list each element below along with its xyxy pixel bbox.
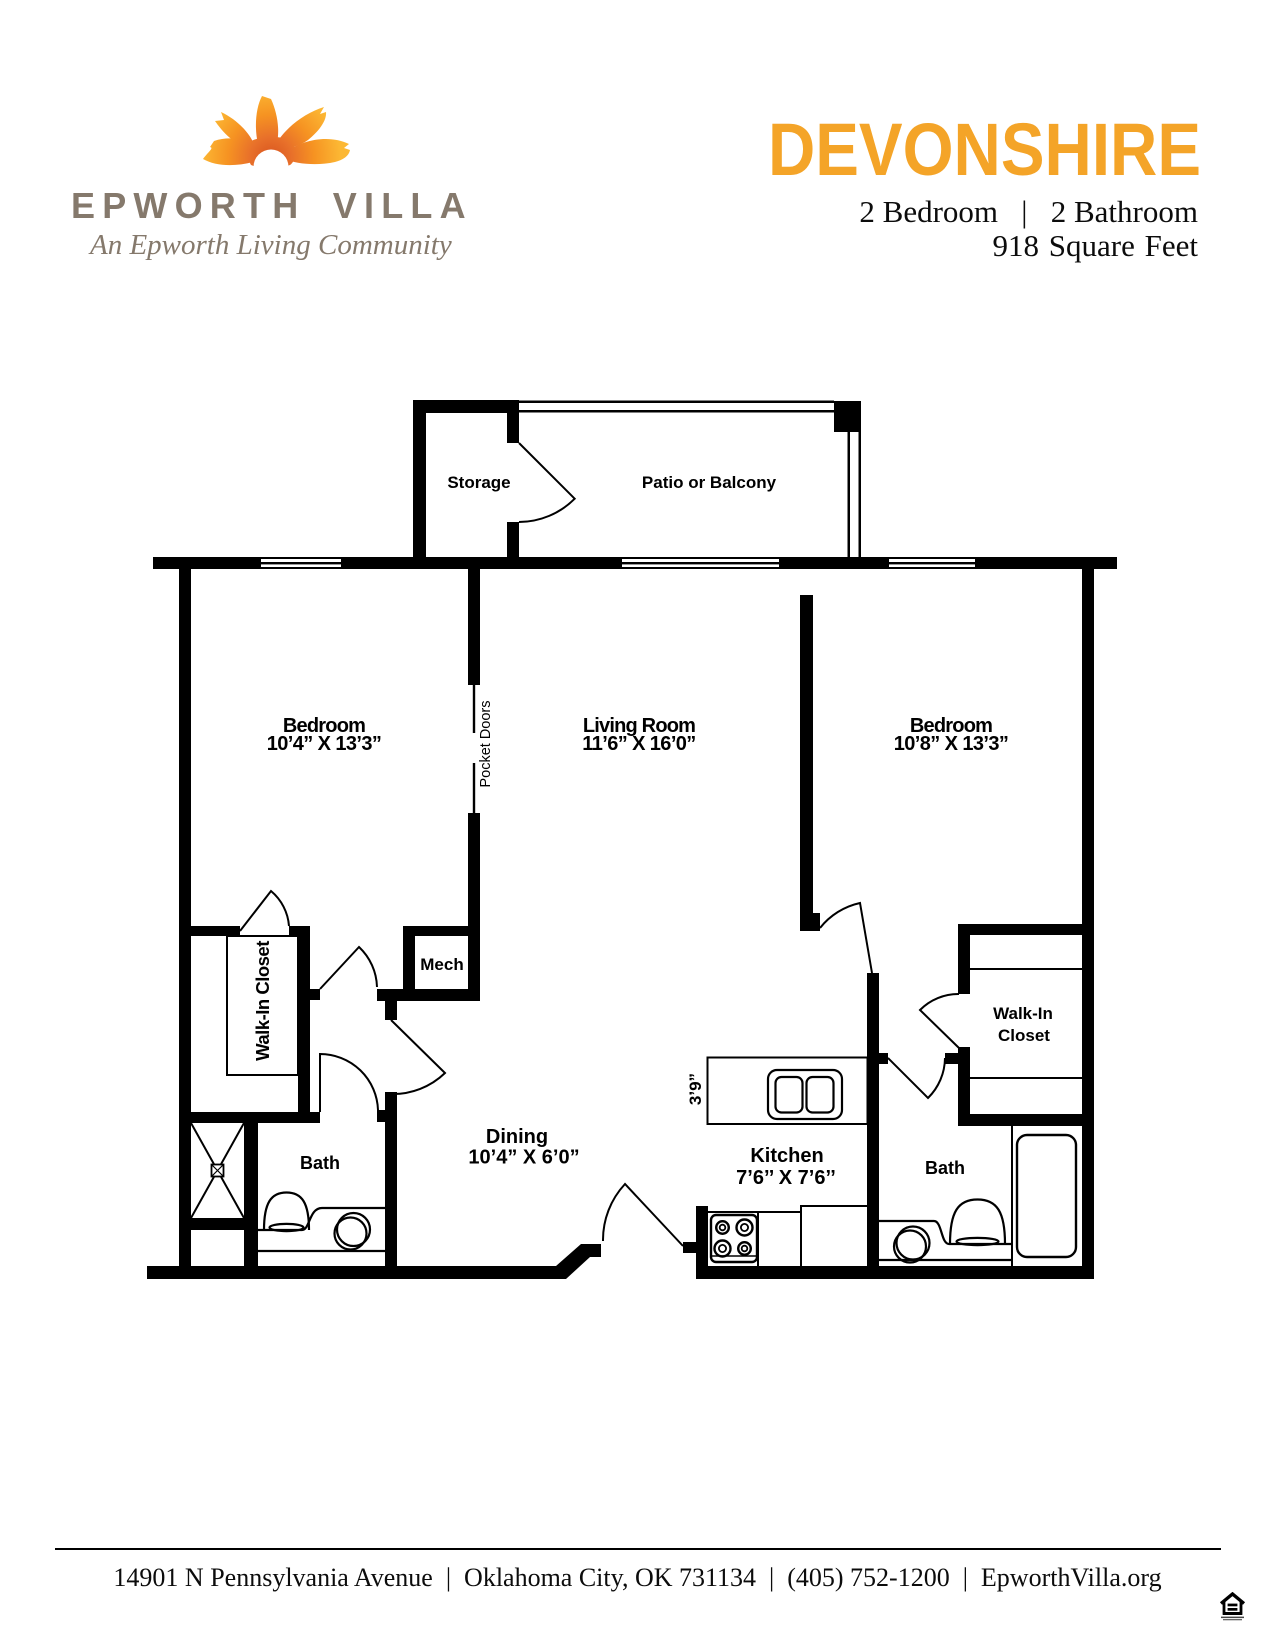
- svg-text:Closet: Closet: [998, 1026, 1050, 1045]
- svg-text:10’4” X 6’0”: 10’4” X 6’0”: [468, 1147, 579, 1169]
- svg-text:Walk-In: Walk-In: [993, 1004, 1053, 1023]
- svg-text:Pocket Doors: Pocket Doors: [478, 700, 494, 787]
- svg-text:3’9”: 3’9”: [686, 1073, 705, 1105]
- svg-text:Bath: Bath: [925, 1158, 965, 1178]
- svg-text:Walk-In Closet: Walk-In Closet: [252, 941, 273, 1061]
- svg-text:7’6’’ X 7’6’’: 7’6’’ X 7’6’’: [736, 1167, 836, 1189]
- svg-text:10’4” X 13’3”: 10’4” X 13’3”: [267, 733, 382, 755]
- svg-text:Mech: Mech: [420, 955, 463, 974]
- svg-text:Patio or Balcony: Patio or Balcony: [642, 473, 777, 492]
- svg-text:Kitchen: Kitchen: [750, 1145, 823, 1167]
- svg-text:11’6” X 16’0”: 11’6” X 16’0”: [582, 733, 695, 755]
- svg-text:10’8” X 13’3”: 10’8” X 13’3”: [894, 733, 1009, 755]
- svg-text:Bath: Bath: [300, 1153, 340, 1173]
- svg-text:Dining: Dining: [486, 1126, 548, 1148]
- svg-text:Storage: Storage: [447, 473, 510, 492]
